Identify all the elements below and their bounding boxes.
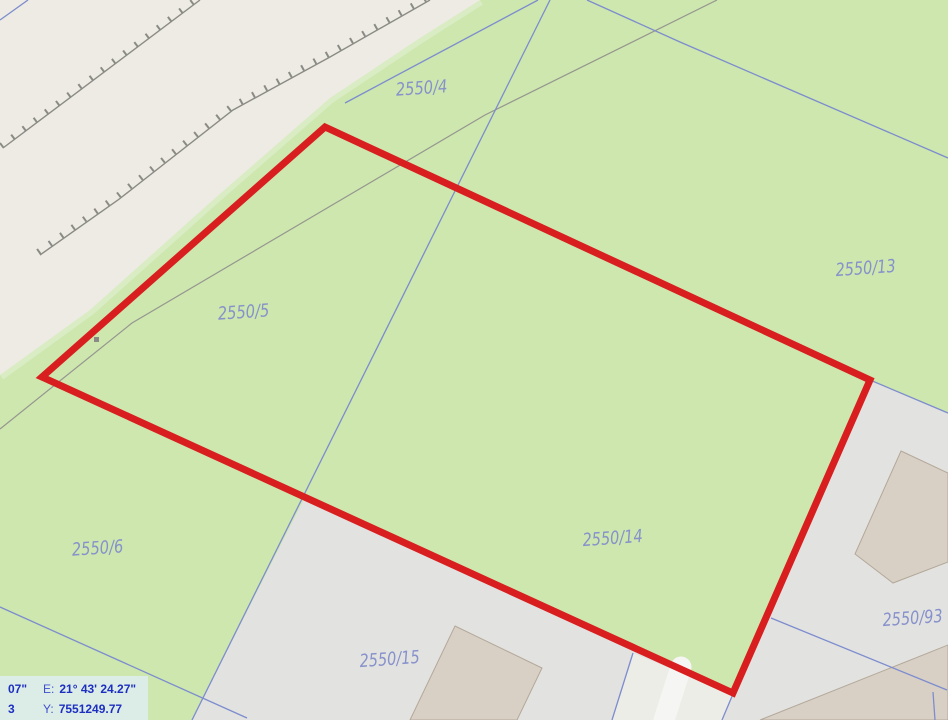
coordinate-row-east: 07" E: 21° 43' 24.27": [0, 679, 148, 699]
coordinate-fragment: 07": [8, 679, 34, 699]
parcel-label: 2550/4: [395, 76, 448, 101]
map-viewport: 2550/42550/52550/132550/62550/142550/152…: [0, 0, 948, 720]
parcel-label: 2550/13: [835, 256, 897, 281]
parcel-label: 2550/14: [582, 526, 644, 551]
survey-point-marker: [94, 337, 99, 342]
coordinate-fragment: 3: [8, 699, 34, 719]
parcel-label: 2550/6: [71, 536, 124, 561]
urban-area: [192, 380, 948, 720]
parcel-label: 2550/93: [882, 606, 944, 631]
east-coordinate-label: E:: [43, 679, 54, 699]
y-coordinate-value: 7551249.77: [59, 699, 122, 719]
coordinate-row-y: 3 Y: 7551249.77: [0, 699, 148, 719]
parcel-label: 2550/15: [359, 647, 421, 672]
y-coordinate-label: Y:: [43, 699, 54, 719]
east-coordinate-value: 21° 43' 24.27": [59, 679, 136, 699]
map-canvas[interactable]: 2550/42550/52550/132550/62550/142550/152…: [0, 0, 948, 720]
parcel-label: 2550/5: [217, 300, 270, 325]
parcel-boundary: [587, 0, 948, 158]
coordinate-statusbar: 07" E: 21° 43' 24.27" 3 Y: 7551249.77: [0, 676, 148, 720]
